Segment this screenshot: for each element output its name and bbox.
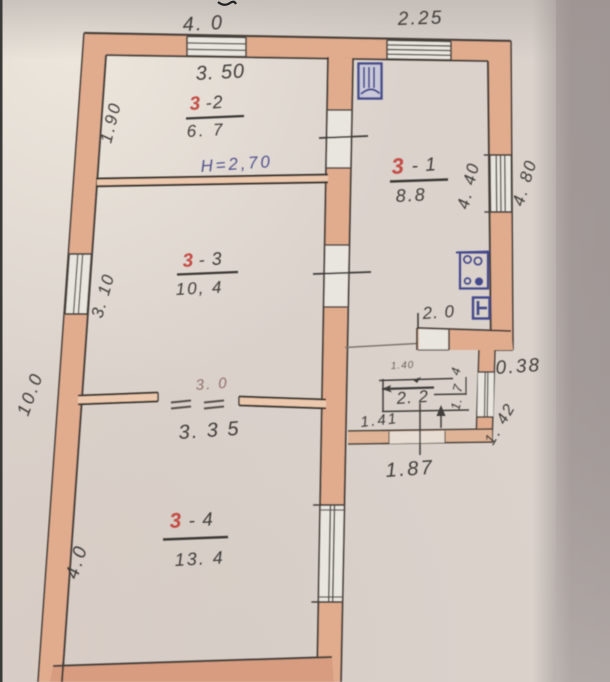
svg-text:1.87: 1.87	[385, 457, 435, 482]
svg-text:2.25: 2.25	[396, 7, 443, 30]
svg-text:6. 7: 6. 7	[186, 120, 225, 141]
svg-text:0.38: 0.38	[495, 355, 542, 379]
svg-text:3. 3 5: 3. 3 5	[178, 418, 241, 444]
svg-text:3: 3	[169, 509, 183, 533]
svg-text:- 4: - 4	[188, 509, 215, 532]
svg-text:3: 3	[189, 93, 202, 115]
svg-text:- 3: - 3	[198, 248, 223, 270]
svg-text:2. 2: 2. 2	[395, 387, 430, 408]
svg-text:1.40: 1.40	[391, 360, 415, 372]
svg-text:3: 3	[391, 153, 406, 179]
svg-text:3: 3	[182, 250, 195, 272]
svg-text:3. 50: 3. 50	[195, 60, 246, 85]
svg-text:10, 4: 10, 4	[175, 278, 224, 299]
svg-text:2. 0: 2. 0	[421, 302, 456, 323]
svg-text:4. 0: 4. 0	[182, 12, 224, 36]
svg-text:13. 4: 13. 4	[174, 547, 225, 570]
svg-text:3. 0: 3. 0	[195, 375, 229, 394]
svg-text:8.8: 8.8	[395, 184, 427, 206]
svg-text:- 1: - 1	[411, 154, 438, 177]
svg-text:-2: -2	[205, 92, 224, 113]
